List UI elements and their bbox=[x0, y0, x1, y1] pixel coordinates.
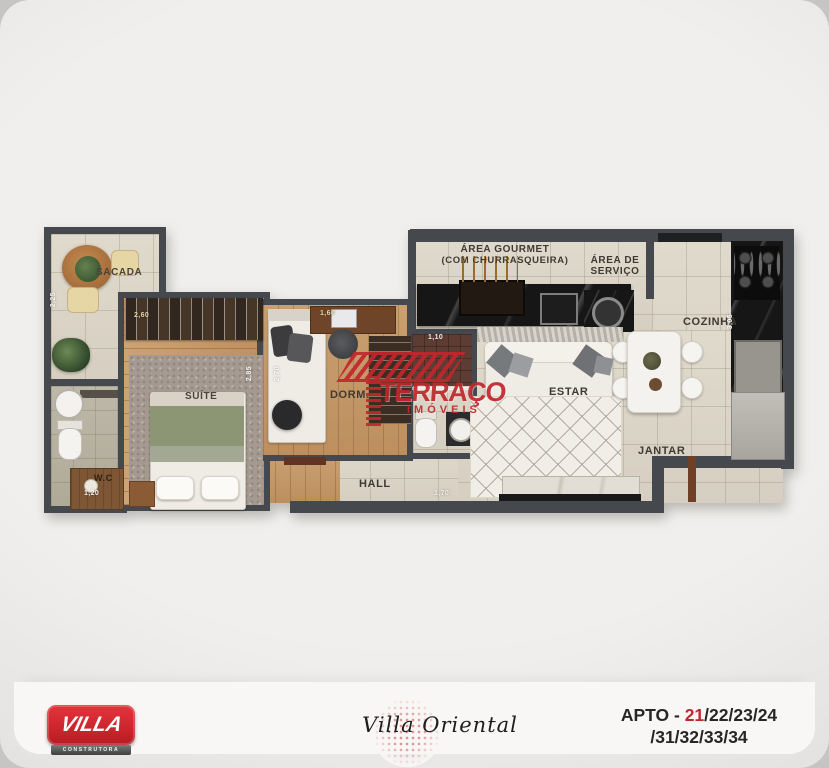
dorm-pouf bbox=[272, 400, 302, 430]
label-area-gourmet-line1: ÁREA GOURMET bbox=[424, 244, 586, 255]
builder-tagline: CONSTRUTORA bbox=[63, 747, 119, 753]
tv-rack-base bbox=[499, 494, 641, 501]
dim-dorm-top: 1,60 bbox=[320, 310, 335, 317]
label-area-gourmet: ÁREA GOURMET (COM CHURRASQUEIRA) bbox=[424, 244, 586, 266]
builder-logo-text: VILLA bbox=[58, 713, 125, 737]
dim-bathroom: 1,10 bbox=[428, 334, 443, 341]
builder-tagline-bar: CONSTRUTORA bbox=[51, 745, 131, 755]
table-centerpiece-2 bbox=[649, 378, 662, 391]
sofa-pillow-4 bbox=[593, 355, 613, 375]
sofa-throw bbox=[477, 327, 623, 342]
dining-chair-4 bbox=[681, 377, 703, 399]
dim-kitchen: 3,05 bbox=[727, 314, 734, 329]
apto-numbers: APTO - 21/22/23/24 /31/32/33/34 bbox=[590, 704, 808, 748]
gourmet-sink bbox=[540, 293, 578, 325]
label-jantar: JANTAR bbox=[638, 445, 685, 457]
dorm-pillow-gray bbox=[286, 333, 313, 364]
label-estar: ESTAR bbox=[549, 386, 588, 398]
label-wc: W.C bbox=[94, 473, 113, 483]
label-sacada: SACADA bbox=[96, 267, 142, 278]
watermark-terraco: TERRAÇO IMÓVEIS bbox=[330, 345, 490, 430]
fridge bbox=[731, 392, 785, 460]
label-hall: HALL bbox=[359, 478, 391, 490]
kitchen-window bbox=[658, 233, 722, 242]
dim-sacada: 2,25 bbox=[50, 292, 57, 307]
suite-blanket-sage bbox=[150, 446, 244, 462]
wall-living-bottom bbox=[290, 501, 664, 513]
dim-wc: 1,20 bbox=[84, 490, 99, 497]
dim-suite-right: 2,85 bbox=[246, 366, 253, 381]
cooktop bbox=[734, 246, 780, 300]
suite-nightstand bbox=[129, 481, 155, 507]
washer bbox=[592, 297, 624, 329]
suite-pillow-left bbox=[156, 476, 194, 500]
label-area-servico-line2: SERVIÇO bbox=[583, 266, 647, 277]
balcony-chair-bottom bbox=[67, 287, 99, 313]
label-area-servico: ÁREA DE SERVIÇO bbox=[583, 255, 647, 277]
suite-blanket-green bbox=[150, 406, 244, 446]
dim-suite-closet: 2,60 bbox=[134, 312, 149, 319]
dining-chair-3 bbox=[681, 341, 703, 363]
door-leaf-dining bbox=[688, 456, 696, 502]
apto-line2: /31/32/33/34 bbox=[590, 726, 808, 748]
wc-sink bbox=[54, 389, 84, 419]
barbecue-grill bbox=[459, 280, 525, 316]
table-centerpiece-1 bbox=[643, 352, 661, 370]
apto-prefix: APTO - bbox=[621, 705, 685, 725]
apto-line1: APTO - 21/22/23/24 bbox=[590, 704, 808, 726]
dining-table bbox=[627, 331, 681, 413]
watermark-subtitle: IMÓVEIS bbox=[407, 404, 481, 416]
label-suite: SUÍTE bbox=[185, 391, 217, 402]
wc-toilet bbox=[58, 428, 82, 460]
wc-shelf bbox=[80, 390, 118, 398]
door-leaf-hall bbox=[284, 457, 326, 465]
project-name: Villa Oriental bbox=[346, 713, 534, 737]
label-area-gourmet-line2: (COM CHURRASQUEIRA) bbox=[424, 255, 586, 266]
dim-hall: 1,70 bbox=[434, 490, 449, 497]
label-area-servico-line1: ÁREA DE bbox=[583, 255, 647, 266]
suite-closet bbox=[125, 298, 263, 340]
apto-highlight: 21 bbox=[685, 705, 704, 725]
wall-service-divider bbox=[646, 241, 654, 299]
dim-dorm-left: 2,70 bbox=[274, 366, 281, 381]
apto-rest: /22/23/24 bbox=[704, 705, 777, 725]
suite-pillow-right bbox=[201, 476, 239, 500]
builder-logo: VILLA bbox=[47, 705, 135, 745]
kitchen-sink bbox=[734, 340, 782, 396]
balcony-potted-plant bbox=[52, 338, 90, 372]
